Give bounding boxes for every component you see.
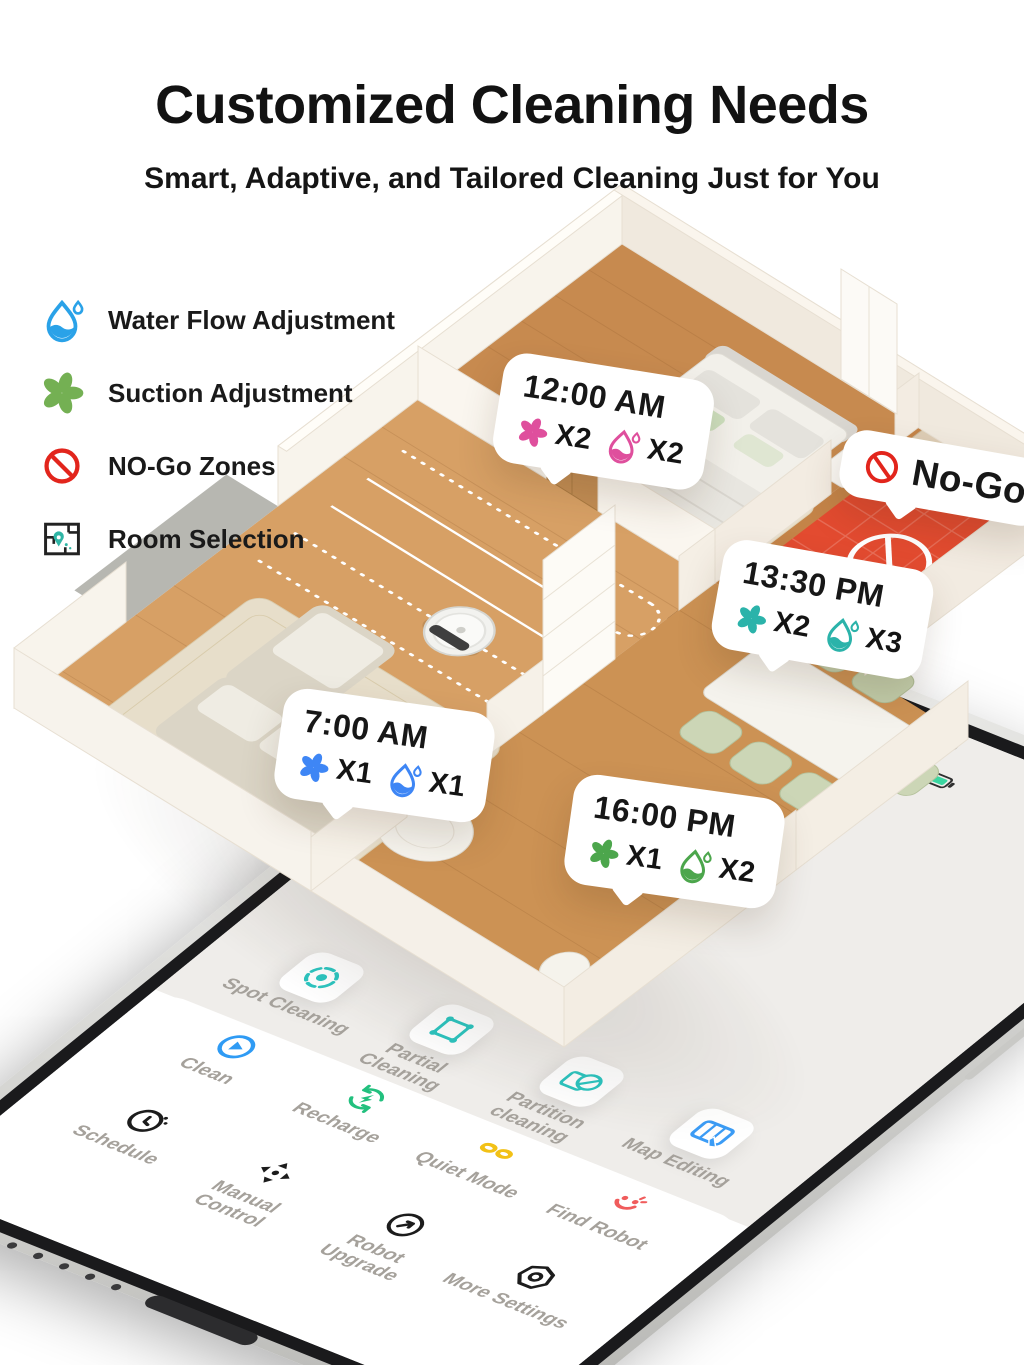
water-drop-icon bbox=[383, 759, 425, 801]
callout-label: No-Go bbox=[909, 452, 1024, 513]
suction-icon-wrap bbox=[733, 600, 770, 637]
suction-fan-icon bbox=[514, 413, 551, 450]
feature-icon-wrap bbox=[38, 296, 86, 344]
suction-multiplier: X2 bbox=[553, 419, 594, 457]
water-icon-wrap bbox=[673, 845, 715, 887]
water-multiplier: X2 bbox=[645, 433, 686, 471]
suction-icon-wrap bbox=[586, 835, 622, 871]
feature-label: Water Flow Adjustment bbox=[108, 305, 395, 336]
suction-icon-wrap bbox=[514, 413, 551, 450]
suction-icon-wrap bbox=[296, 749, 332, 785]
feature-label: Room Selection bbox=[108, 524, 304, 555]
feature-list: Water Flow AdjustmentSuction AdjustmentN… bbox=[38, 297, 395, 562]
feature-item-no-go-zones: NO-Go Zones bbox=[38, 443, 395, 489]
suction-fan-icon bbox=[296, 749, 332, 785]
suction-fan-icon bbox=[39, 370, 85, 416]
no-go-icon bbox=[858, 443, 907, 492]
feature-label: Suction Adjustment bbox=[108, 378, 353, 409]
water-multiplier: X2 bbox=[717, 853, 758, 891]
room-selection-icon bbox=[39, 516, 85, 562]
feature-item-room-selection: Room Selection bbox=[38, 516, 395, 562]
feature-icon-wrap bbox=[38, 442, 86, 490]
page-title: Customized Cleaning Needs bbox=[0, 74, 1024, 136]
water-multiplier: X3 bbox=[863, 622, 905, 661]
water-multiplier: X1 bbox=[427, 767, 468, 805]
water-drop-icon bbox=[673, 845, 715, 887]
page-subtitle: Smart, Adaptive, and Tailored Cleaning J… bbox=[0, 162, 1024, 196]
water-icon-wrap bbox=[820, 613, 863, 656]
feature-icon-wrap bbox=[38, 515, 86, 563]
marketing-page: Spot CleaningPartial CleaningPartition c… bbox=[0, 0, 1024, 1365]
suction-fan-icon bbox=[586, 835, 622, 871]
suction-multiplier: X2 bbox=[771, 606, 813, 645]
feature-label: NO-Go Zones bbox=[108, 451, 276, 482]
water-icon-wrap bbox=[383, 759, 425, 801]
feature-icon-wrap bbox=[38, 369, 86, 417]
water-drop-icon bbox=[601, 425, 643, 467]
water-icon-wrap bbox=[601, 425, 643, 467]
water-drop-icon bbox=[820, 613, 863, 656]
suction-multiplier: X1 bbox=[624, 840, 665, 878]
feature-item-water-flow-adjustment: Water Flow Adjustment bbox=[38, 297, 395, 343]
no-go-icon bbox=[39, 443, 85, 489]
suction-fan-icon bbox=[733, 600, 770, 637]
feature-item-suction-adjustment: Suction Adjustment bbox=[38, 370, 395, 416]
suction-multiplier: X1 bbox=[334, 754, 375, 792]
water-drop-icon bbox=[39, 297, 85, 343]
no-go-icon-wrap bbox=[858, 443, 907, 492]
header: Customized Cleaning Needs Smart, Adaptiv… bbox=[0, 74, 1024, 196]
